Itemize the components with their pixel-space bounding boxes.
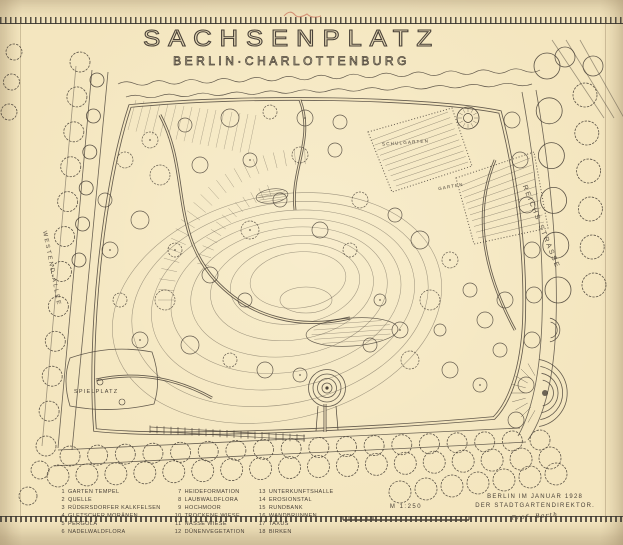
legend-item: 2QUELLE	[58, 497, 161, 505]
legend: 1GARTEN TEMPEL2QUELLE3RÜDERSDORFER KALKF…	[58, 489, 334, 537]
archive-mark	[284, 12, 321, 17]
legend-item: 1GARTEN TEMPEL	[58, 489, 161, 497]
legend-column-2: 7HEIDEFORMATION8LAUBWALDFLORA9HOCHMOOR10…	[175, 489, 245, 537]
legend-item: 15RUNDBANK	[259, 505, 334, 513]
legend-item: 8LAUBWALDFLORA	[175, 497, 245, 505]
legend-item: 18BIRKEN	[259, 529, 334, 537]
playground-label: SPIELPLATZ	[74, 389, 118, 395]
top-hedge	[118, 69, 540, 98]
park-plan-drawing	[0, 0, 623, 545]
scale-bar	[340, 513, 472, 523]
legend-item: 14EROSIONSTAL	[259, 497, 334, 505]
legend-item: 5PERGOLA	[58, 521, 161, 529]
park-trees	[98, 105, 513, 392]
legend-item: 10TROCKENE WIESE	[175, 513, 245, 521]
legend-column-1: 1GARTEN TEMPEL2QUELLE3RÜDERSDORFER KALKF…	[58, 489, 161, 537]
plan-sheet: SACHSENPLATZ BERLIN·CHARLOTTENBURG WESTE…	[0, 0, 623, 545]
legend-column-3: 13UNTERKUNFTSHALLE14EROSIONSTAL15RUNDBAN…	[259, 489, 334, 537]
scale-block: M 1:250	[340, 504, 472, 528]
scale-label: M 1:250	[340, 504, 472, 510]
legend-item: 4GLETSCHER MORÄNEN	[58, 513, 161, 521]
imprint-place-date: BERLIN IM JANUAR 1928	[475, 493, 595, 502]
legend-item: 6NADELWALDFLORA	[58, 529, 161, 537]
legend-item: 16WANDBRUNNEN	[259, 513, 334, 521]
terrain-contours	[89, 161, 465, 454]
imprint-block: BERLIN IM JANUAR 1928 DER STADTGARTENDIR…	[475, 493, 595, 521]
legend-item: 17TAXUS	[259, 521, 334, 529]
legend-item: 11NASSE WIESE	[175, 521, 245, 529]
legend-item: 12DÜNENVEGETATION	[175, 529, 245, 537]
street-lines	[42, 40, 623, 466]
legend-item: 9HOCHMOOR	[175, 505, 245, 513]
legend-item: 7HEIDEFORMATION	[175, 489, 245, 497]
round-plaza	[309, 370, 346, 432]
legend-item: 13UNTERKUNFTSHALLE	[259, 489, 334, 497]
exedra	[511, 318, 567, 426]
playground	[66, 349, 158, 409]
legend-item: 3RÜDERSDORFER KALKFELSEN	[58, 505, 161, 513]
